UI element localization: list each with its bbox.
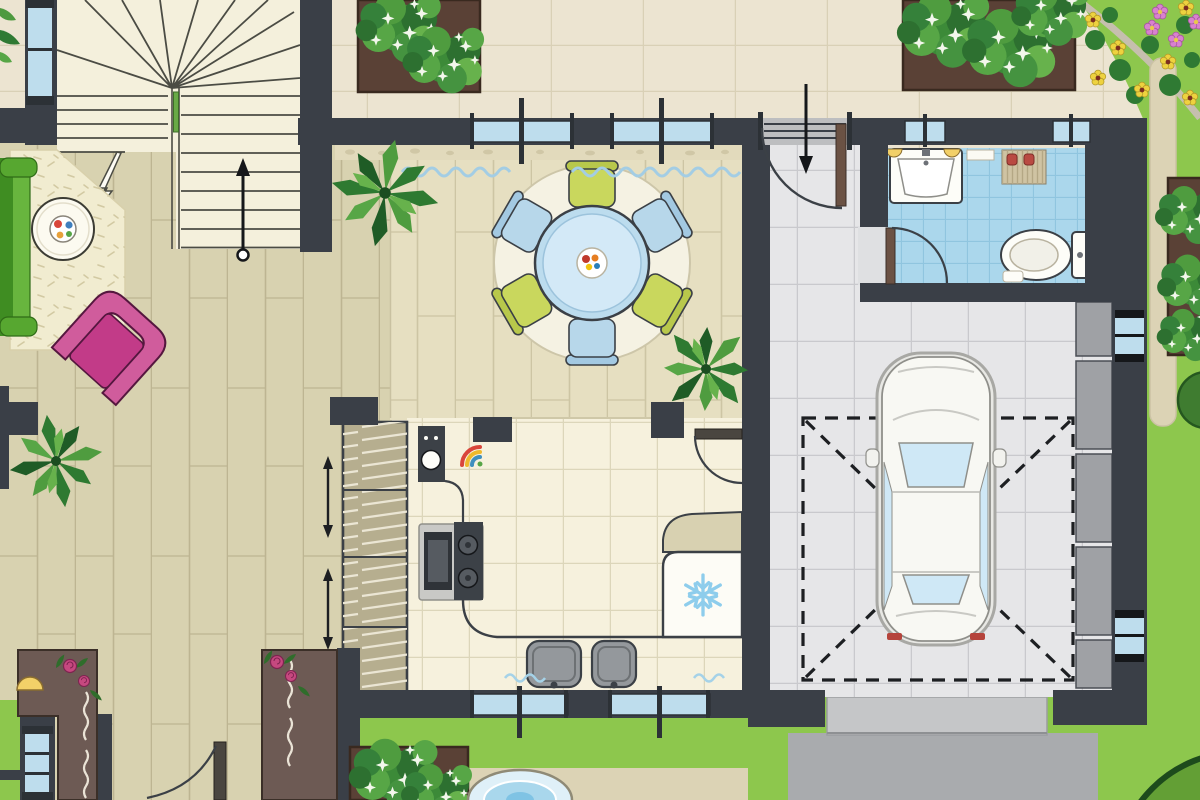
planter-bottom xyxy=(349,739,472,800)
windshield xyxy=(899,443,973,487)
small-mat xyxy=(1003,271,1023,282)
chair-blue xyxy=(566,319,618,365)
car xyxy=(866,353,1006,645)
refrigerator xyxy=(663,552,742,637)
planter-top-right xyxy=(897,0,1090,90)
stove xyxy=(419,522,483,600)
door-leaf xyxy=(886,228,895,284)
coffee-maker xyxy=(422,451,441,470)
planter-top-left xyxy=(356,0,485,93)
slipper xyxy=(1007,154,1017,165)
corner-counter xyxy=(663,512,742,552)
fruit-bowl xyxy=(577,248,607,278)
floor-plan-illustration xyxy=(0,0,1200,800)
shelf xyxy=(967,150,994,160)
flower-bench-right xyxy=(261,650,337,800)
bath-mat xyxy=(1002,150,1046,184)
toy xyxy=(50,216,76,242)
floor-plan-canvas xyxy=(0,0,1200,800)
door-leaf xyxy=(214,742,226,800)
terrace-window xyxy=(22,726,53,800)
garage-threshold xyxy=(827,697,1047,735)
door-leaf xyxy=(836,124,846,206)
stair-handrail xyxy=(174,92,179,132)
vanity-basin xyxy=(886,149,962,203)
bathroom-doorway-floor xyxy=(858,227,890,285)
side-mirror xyxy=(993,449,1006,467)
chair-green xyxy=(566,161,618,207)
stair-window xyxy=(26,0,54,105)
rear-window xyxy=(903,575,969,604)
garage-window-1 xyxy=(1115,310,1144,362)
side-mirror xyxy=(866,449,879,467)
door-leaf xyxy=(695,429,742,439)
slipper xyxy=(1024,154,1034,165)
garage-window-2 xyxy=(1115,610,1144,662)
dining-table xyxy=(535,206,649,320)
round-play-rug xyxy=(32,198,94,260)
driveway xyxy=(788,733,1098,800)
